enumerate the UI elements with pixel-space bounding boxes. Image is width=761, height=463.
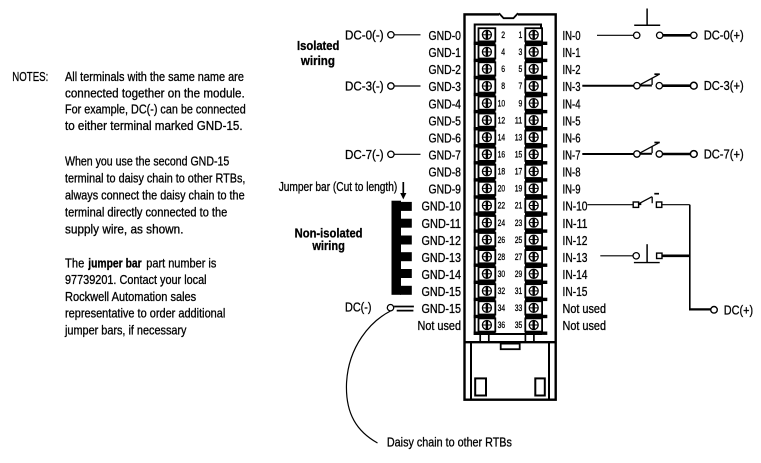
svg-text:97739201. Contact your local: 97739201. Contact your local xyxy=(65,272,207,287)
svg-text:10: 10 xyxy=(498,98,506,108)
svg-text:GND-13: GND-13 xyxy=(422,250,462,265)
svg-text:IN-10: IN-10 xyxy=(563,199,588,214)
svg-text:7: 7 xyxy=(519,81,523,91)
svg-text:21: 21 xyxy=(515,201,523,211)
svg-text:GND-11: GND-11 xyxy=(422,216,462,231)
svg-text:GND-2: GND-2 xyxy=(429,62,462,77)
svg-text:28: 28 xyxy=(498,252,506,262)
svg-text:IN-4: IN-4 xyxy=(563,96,581,111)
svg-text:terminal directly connected to: terminal directly connected to the xyxy=(65,205,227,220)
svg-text:9: 9 xyxy=(519,98,523,108)
svg-text:IN-0: IN-0 xyxy=(563,28,581,43)
svg-text:Rockwell Automation sales: Rockwell Automation sales xyxy=(65,289,197,304)
svg-text:GND-3: GND-3 xyxy=(429,79,462,94)
svg-text:IN-13: IN-13 xyxy=(563,250,588,265)
svg-text:16: 16 xyxy=(498,150,506,160)
svg-text:15: 15 xyxy=(515,150,523,160)
svg-text:GND-10: GND-10 xyxy=(422,199,462,214)
svg-text:Not used: Not used xyxy=(563,318,607,333)
svg-text:representative to order additi: representative to order additional xyxy=(65,306,225,321)
svg-text:terminal to daisy chain to oth: terminal to daisy chain to other RTBs, xyxy=(65,171,245,186)
svg-text:always connect the daisy chain: always connect the daisy chain to the xyxy=(65,188,245,203)
svg-text:20: 20 xyxy=(498,184,506,194)
svg-text:1: 1 xyxy=(519,30,523,40)
svg-text:3: 3 xyxy=(519,47,523,57)
svg-text:When you use the second GND-15: When you use the second GND-15 xyxy=(65,154,229,169)
svg-text:IN-5: IN-5 xyxy=(563,113,581,128)
svg-text:14: 14 xyxy=(498,132,506,142)
svg-text:IN-12: IN-12 xyxy=(563,233,588,248)
svg-text:GND-15: GND-15 xyxy=(422,284,462,299)
svg-text:22: 22 xyxy=(498,201,506,211)
svg-text:17: 17 xyxy=(515,167,523,177)
svg-text:33: 33 xyxy=(515,303,523,313)
svg-text:IN-8: IN-8 xyxy=(563,165,581,180)
svg-text:36: 36 xyxy=(498,320,506,330)
svg-text:IN-6: IN-6 xyxy=(563,130,581,145)
svg-text:supply wire, as shown.: supply wire, as shown. xyxy=(65,222,184,237)
svg-text:GND-1: GND-1 xyxy=(429,45,462,60)
svg-text:DC(+): DC(+) xyxy=(724,302,753,317)
svg-text:GND-15: GND-15 xyxy=(422,301,462,316)
svg-text:All terminals with the same na: All terminals with the same name are xyxy=(65,69,244,84)
svg-text:GND-8: GND-8 xyxy=(429,165,462,180)
svg-text:8: 8 xyxy=(501,81,505,91)
svg-text:NOTES:: NOTES: xyxy=(12,69,48,84)
svg-text:12: 12 xyxy=(498,115,506,125)
svg-text:jumper bar: jumper bar xyxy=(87,255,141,270)
svg-text:26: 26 xyxy=(498,235,506,245)
svg-text:GND-5: GND-5 xyxy=(429,113,462,128)
svg-text:2: 2 xyxy=(501,30,505,40)
svg-text:jumper bars, if necessary: jumper bars, if necessary xyxy=(64,323,187,338)
svg-text:DC(-): DC(-) xyxy=(345,300,372,315)
svg-text:DC-3(+): DC-3(+) xyxy=(704,78,744,93)
svg-text:35: 35 xyxy=(515,320,523,330)
svg-text:5: 5 xyxy=(519,64,523,74)
svg-text:to either terminal marked GND-: to either terminal marked GND-15. xyxy=(65,118,243,133)
svg-text:IN-15: IN-15 xyxy=(563,284,588,299)
svg-text:Daisy chain to other RTBs: Daisy chain to other RTBs xyxy=(387,435,512,450)
svg-text:34: 34 xyxy=(498,303,506,313)
svg-text:27: 27 xyxy=(515,252,523,262)
svg-text:29: 29 xyxy=(515,269,523,279)
svg-text:Not used: Not used xyxy=(563,301,607,316)
svg-text:GND-0: GND-0 xyxy=(429,28,462,43)
svg-text:Jumper bar (Cut to length): Jumper bar (Cut to length) xyxy=(279,179,398,194)
svg-text:GND-6: GND-6 xyxy=(429,130,462,145)
svg-text:part number is: part number is xyxy=(146,255,216,270)
svg-text:DC-0(-): DC-0(-) xyxy=(345,27,384,42)
svg-text:IN-2: IN-2 xyxy=(563,62,581,77)
svg-text:GND-9: GND-9 xyxy=(429,182,462,197)
svg-text:The: The xyxy=(65,255,84,270)
svg-text:wiring: wiring xyxy=(300,53,335,68)
svg-text:31: 31 xyxy=(515,286,523,296)
svg-text:DC-0(+): DC-0(+) xyxy=(704,28,744,43)
svg-text:GND-12: GND-12 xyxy=(422,233,462,248)
svg-text:24: 24 xyxy=(498,218,506,228)
svg-text:DC-7(-): DC-7(-) xyxy=(345,147,384,162)
svg-text:Not used: Not used xyxy=(418,318,462,333)
svg-text:IN-1: IN-1 xyxy=(563,45,581,60)
svg-text:Isolated: Isolated xyxy=(297,38,339,53)
svg-text:GND-4: GND-4 xyxy=(429,96,462,111)
svg-text:connected together on the modu: connected together on the module. xyxy=(65,85,245,100)
svg-text:18: 18 xyxy=(498,167,506,177)
svg-text:GND-7: GND-7 xyxy=(429,148,462,163)
svg-text:11: 11 xyxy=(515,115,523,125)
svg-text:23: 23 xyxy=(515,218,523,228)
svg-text:DC-7(+): DC-7(+) xyxy=(704,147,744,162)
svg-text:wiring: wiring xyxy=(312,238,345,253)
svg-text:IN-9: IN-9 xyxy=(563,182,581,197)
svg-text:IN-11: IN-11 xyxy=(563,216,588,231)
svg-text:For example, DC(-) can be conn: For example, DC(-) can be connected xyxy=(65,102,246,117)
svg-text:4: 4 xyxy=(501,47,505,57)
svg-text:32: 32 xyxy=(498,286,506,296)
svg-text:6: 6 xyxy=(501,64,505,74)
svg-text:30: 30 xyxy=(498,269,506,279)
svg-text:19: 19 xyxy=(515,184,523,194)
svg-text:25: 25 xyxy=(515,235,523,245)
svg-text:GND-14: GND-14 xyxy=(422,267,462,282)
svg-text:IN-3: IN-3 xyxy=(563,79,581,94)
svg-text:13: 13 xyxy=(515,132,523,142)
svg-text:IN-7: IN-7 xyxy=(563,148,581,163)
svg-text:IN-14: IN-14 xyxy=(563,267,588,282)
svg-text:DC-3(-): DC-3(-) xyxy=(345,79,384,94)
